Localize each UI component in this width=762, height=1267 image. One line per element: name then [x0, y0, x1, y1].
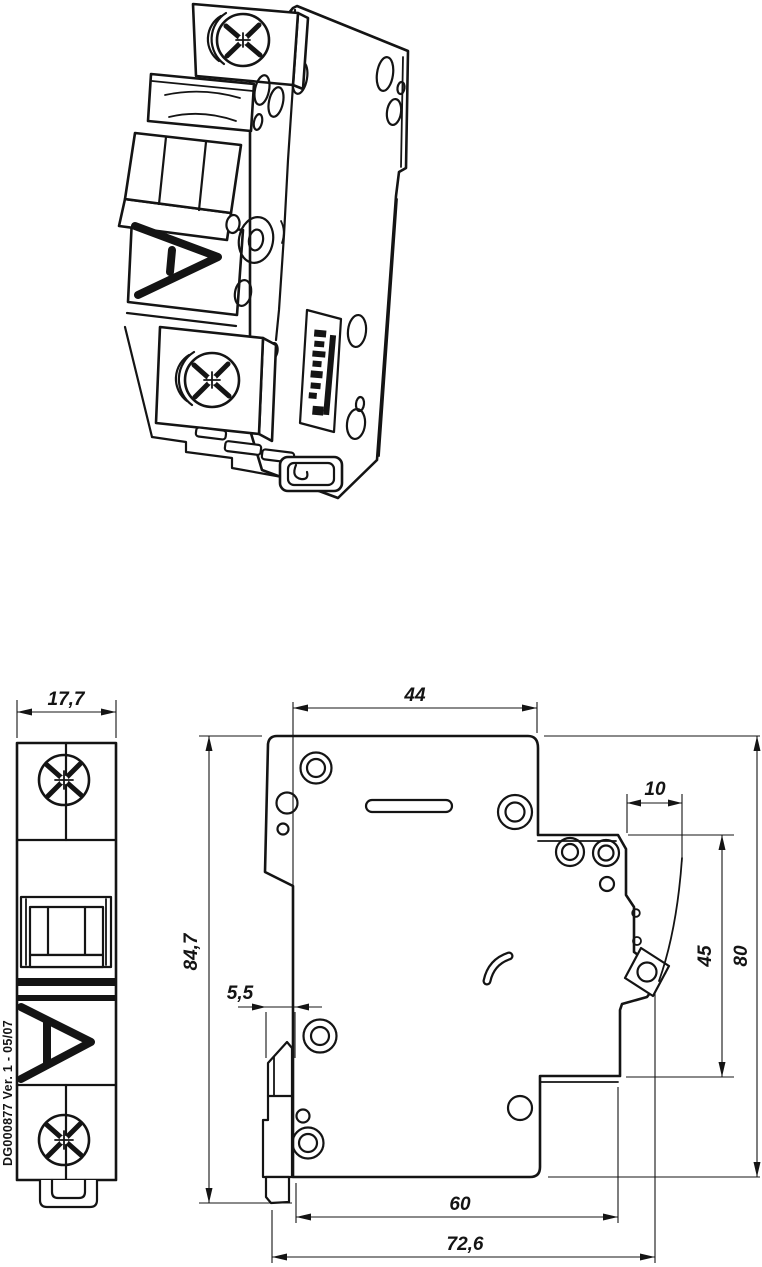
side-din-clip	[263, 1042, 292, 1203]
iso-bottom-terminal	[156, 327, 276, 441]
dim-label-60: 60	[449, 1194, 471, 1215]
front-stripe-lower	[17, 995, 116, 1001]
dimension-front-width: 17,7	[17, 689, 116, 738]
dimension-terminal-depth: 10	[627, 779, 682, 833]
iso-toggle-assembly	[119, 74, 254, 240]
front-din-clip	[40, 1180, 97, 1207]
iso-rating-label	[300, 310, 341, 432]
dim-label-5-5: 5,5	[227, 983, 254, 1004]
front-toggle	[21, 897, 111, 967]
side-body-outline	[265, 736, 665, 1177]
front-view: 17,7 DG000877 Ver. 1 - 05/07	[1, 689, 116, 1207]
dim-label-72-6: 72,6	[447, 1234, 484, 1255]
isometric-view	[119, 4, 408, 498]
dim-label-44: 44	[403, 685, 426, 706]
dim-label-80: 80	[731, 945, 752, 967]
document-code: DG000877 Ver. 1 - 05/07	[1, 1020, 15, 1166]
dim-label-17-7: 17,7	[48, 689, 86, 710]
side-view: 44 10 5,5 84,7 45	[181, 685, 761, 1263]
dim-label-45: 45	[695, 945, 716, 968]
dim-label-84-7: 84,7	[181, 932, 202, 970]
iso-din-clip	[280, 457, 342, 491]
technical-drawing-sheet: 17,7 DG000877 Ver. 1 - 05/07	[0, 0, 762, 1267]
drawing-canvas: 17,7 DG000877 Ver. 1 - 05/07	[0, 0, 762, 1267]
dim-label-10: 10	[644, 779, 666, 800]
front-stripe-upper	[17, 978, 116, 986]
